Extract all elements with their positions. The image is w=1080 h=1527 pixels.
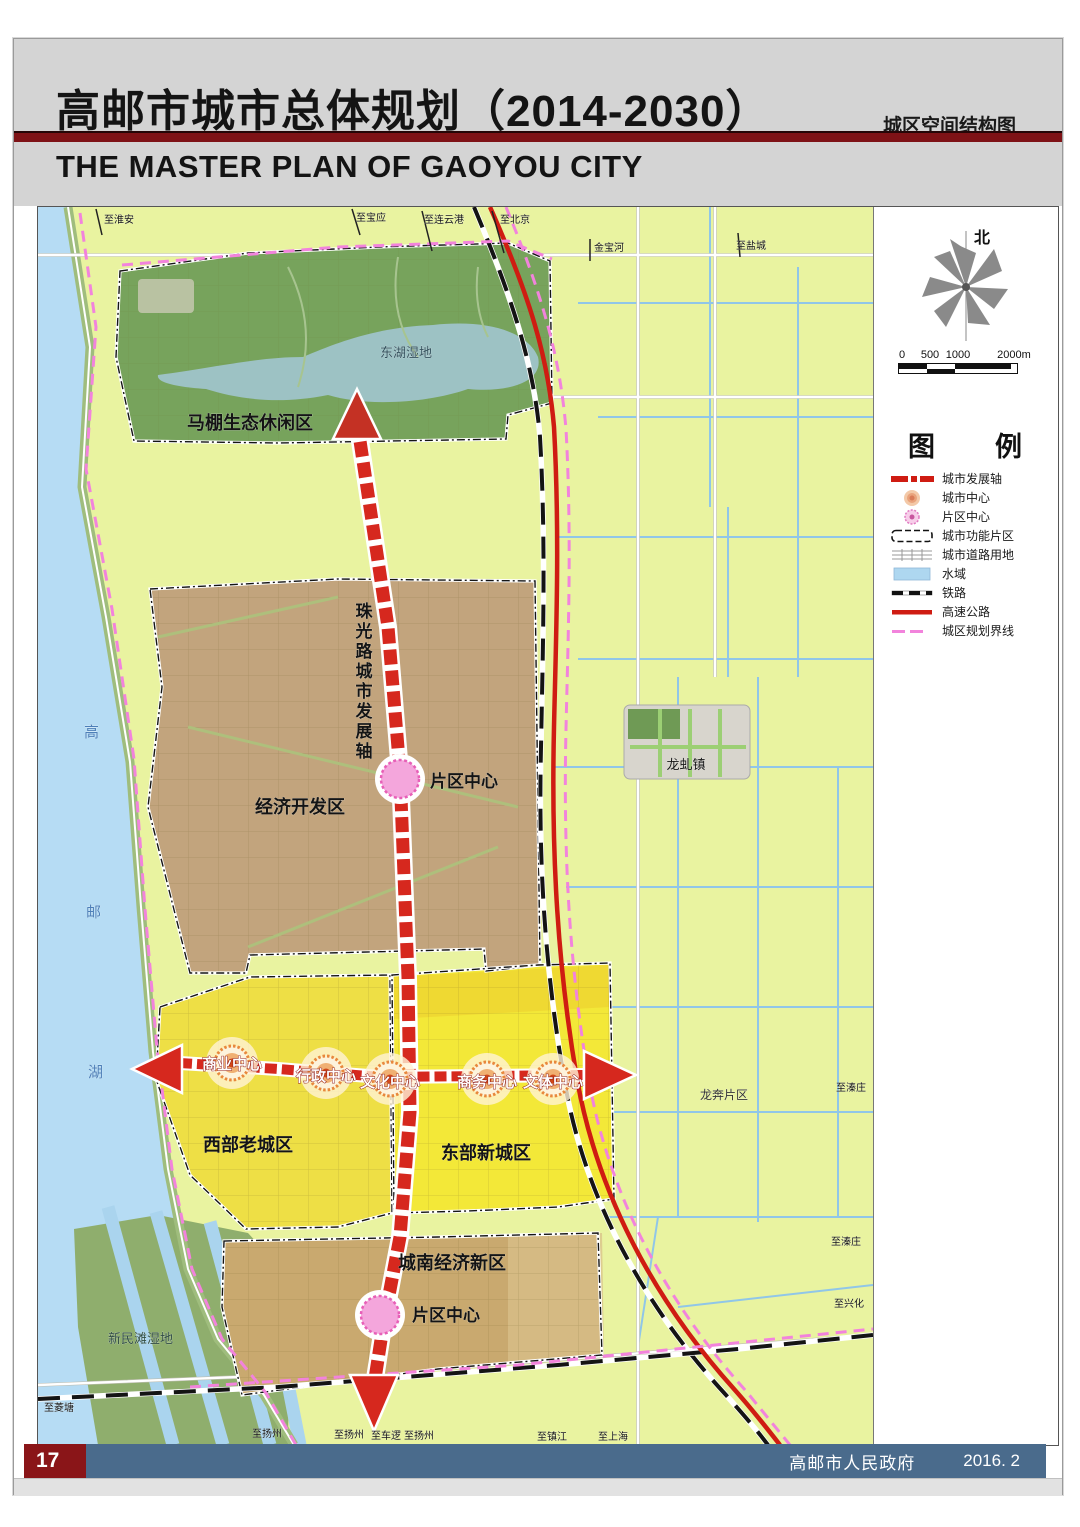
- footer: 17 高邮市人民政府 2016. 2: [24, 1444, 1046, 1478]
- map-label: 马棚生态休闲区: [187, 412, 313, 433]
- map-label: 至北京: [500, 213, 530, 226]
- legend-item-water: 水域: [890, 564, 1050, 583]
- page-title-english: THE MASTER PLAN OF GAOYOU CITY: [56, 149, 643, 185]
- scale-tick-1000: 1000: [946, 349, 970, 361]
- map-label: 至镇江: [537, 1430, 567, 1443]
- highway-symbol: [890, 603, 936, 621]
- map-label: 至盐城: [736, 239, 766, 252]
- map-label: 行政中心: [295, 1067, 356, 1085]
- map-label: 城南经济新区: [398, 1252, 506, 1273]
- scale-bar-segments: [898, 363, 1018, 374]
- legend-item-railway: 铁路: [890, 583, 1050, 602]
- compass-rose: [922, 239, 1008, 327]
- map-label: 西部老城区: [203, 1134, 293, 1155]
- road-land-symbol: [890, 546, 936, 564]
- legend-item-label: 铁路: [942, 584, 966, 601]
- legend-item-district-center: 片区中心: [890, 507, 1050, 526]
- map-label: 高: [84, 724, 99, 741]
- legend-item-functional-area: 城市功能片区: [890, 526, 1050, 545]
- map-label: 至连云港: [424, 213, 464, 226]
- railway-symbol: [890, 584, 936, 602]
- publish-date: 2016. 2: [963, 1451, 1020, 1471]
- water-symbol: [890, 565, 936, 583]
- map-label: 至车逻: [371, 1429, 401, 1442]
- map-frame: 至淮安至宝应至连云港至北京金宝河至盐城东湖湿地马棚生态休闲区珠光路城市发展轴片区…: [37, 206, 1059, 1446]
- legend-item-label: 水域: [942, 565, 966, 582]
- functional-area-symbol: [890, 527, 936, 545]
- map-label: 新民滩湿地: [108, 1331, 173, 1346]
- legend-item-road-land: 城市道路用地: [890, 545, 1050, 564]
- publisher: 高邮市人民政府: [789, 1449, 915, 1474]
- scale-tick-2000: 2000m: [997, 349, 1031, 361]
- map-label: 至上海: [598, 1430, 628, 1443]
- legend-item-label: 城市发展轴: [942, 470, 1002, 487]
- map-label: 片区中心: [412, 1305, 480, 1325]
- map-label: 东部新城区: [441, 1142, 531, 1163]
- legend-item-label: 城市道路用地: [942, 546, 1014, 563]
- map-label: 东湖湿地: [380, 345, 432, 360]
- eco-zone-village: [138, 279, 194, 313]
- map-label: 龙虬镇: [666, 757, 705, 772]
- map-label: 文化中心: [360, 1073, 420, 1091]
- scale-tick-500: 500: [921, 349, 939, 361]
- map-label: 邮: [86, 904, 101, 921]
- map-label: 湖: [88, 1064, 103, 1081]
- legend-item-label: 城市中心: [942, 489, 990, 506]
- map-label: 至溱庄: [831, 1235, 861, 1248]
- map-label: 至菱塘: [44, 1401, 74, 1414]
- map-label: 至扬州: [252, 1427, 282, 1440]
- legend-item-city-center: 城市中心: [890, 488, 1050, 507]
- map-label: 至宝应: [356, 211, 386, 224]
- legend-items: 城市发展轴城市中心片区中心城市功能片区城市道路用地水域铁路高速公路城区规划界线: [890, 469, 1050, 640]
- page-number: 17: [24, 1444, 86, 1478]
- legend-title: 图 例: [874, 425, 1058, 464]
- map-label: 龙奔片区: [700, 1088, 748, 1102]
- map-label: 至扬州: [404, 1429, 434, 1442]
- scale-ticks: 0 500 1000 2000m: [898, 349, 1034, 362]
- scale-tick-0: 0: [899, 349, 905, 361]
- mapeng-eco-zone: [116, 243, 552, 443]
- map-label: 珠光路城市发展轴: [355, 602, 374, 761]
- legend-item-label: 高速公路: [942, 603, 990, 620]
- map-canvas[interactable]: 至淮安至宝应至连云港至北京金宝河至盐城东湖湿地马棚生态休闲区珠光路城市发展轴片区…: [38, 207, 873, 1445]
- legend-panel: 北 0 500 1000 2000m 图 例 城市发展轴城市中心片区中心城市功能…: [873, 207, 1058, 1445]
- legend-item-boundary: 城区规划界线: [890, 621, 1050, 640]
- map-label: 金宝河: [594, 241, 624, 254]
- map-label: 至溱庄: [836, 1081, 866, 1094]
- legend-item-label: 城市功能片区: [942, 527, 1014, 544]
- plan-sheet: 高邮市城市总体规划（2014-2030） 城区空间结构图 THE MASTER …: [13, 38, 1063, 1495]
- title-divider: [14, 131, 1062, 142]
- north-arrow: 北: [906, 225, 1026, 347]
- scale-bar: 0 500 1000 2000m: [898, 349, 1034, 379]
- legend-item-axis: 城市发展轴: [890, 469, 1050, 488]
- map-label: 至扬州: [334, 1428, 364, 1441]
- boundary-symbol: [890, 622, 936, 640]
- legend-item-label: 城区规划界线: [942, 622, 1014, 639]
- map-label: 商务中心: [457, 1073, 517, 1091]
- footer-bar: 高邮市人民政府 2016. 2: [86, 1444, 1046, 1478]
- map-label: 经济开发区: [255, 796, 345, 817]
- map-label: 商业中心: [202, 1055, 262, 1073]
- page-bottom-strip: [14, 1478, 1062, 1496]
- header: 高邮市城市总体规划（2014-2030） 城区空间结构图 THE MASTER …: [14, 39, 1062, 206]
- axis-symbol: [890, 470, 936, 488]
- city-center-symbol: [890, 489, 936, 507]
- map-label: 至淮安: [104, 213, 134, 226]
- map-label: 至兴化: [834, 1297, 864, 1310]
- page-title: 高邮市城市总体规划（2014-2030）: [56, 75, 770, 139]
- legend-item-highway: 高速公路: [890, 602, 1050, 621]
- legend-item-label: 片区中心: [942, 508, 990, 525]
- district-center-symbol: [890, 508, 936, 526]
- map-label: 片区中心: [430, 771, 498, 791]
- planning-map[interactable]: 至淮安至宝应至连云港至北京金宝河至盐城东湖湿地马棚生态休闲区珠光路城市发展轴片区…: [38, 207, 873, 1445]
- north-label: 北: [974, 229, 990, 247]
- map-label: 文体中心: [523, 1073, 583, 1091]
